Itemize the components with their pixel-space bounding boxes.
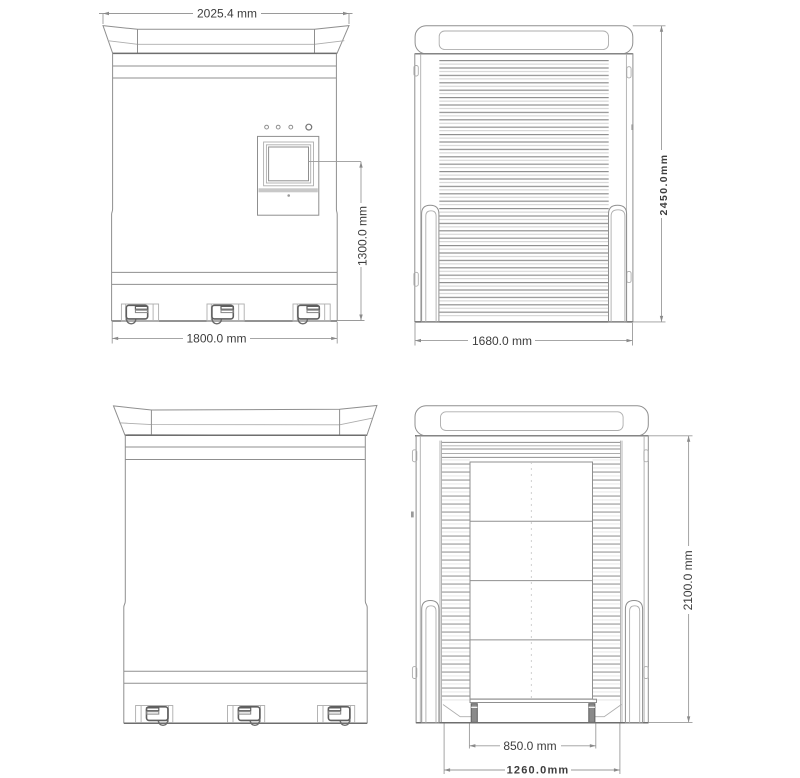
svg-text:850.0 mm: 850.0 mm bbox=[503, 739, 556, 753]
svg-text:2025.4 mm: 2025.4 mm bbox=[197, 7, 257, 21]
svg-text:1680.0 mm: 1680.0 mm bbox=[472, 334, 532, 348]
svg-text:2450.0mm: 2450.0mm bbox=[658, 154, 670, 216]
svg-text:1300.0 mm: 1300.0 mm bbox=[355, 206, 369, 266]
svg-text:1800.0 mm: 1800.0 mm bbox=[186, 332, 246, 346]
svg-text:2100.0 mm: 2100.0 mm bbox=[681, 550, 695, 610]
svg-text:1260.0mm: 1260.0mm bbox=[507, 764, 570, 776]
